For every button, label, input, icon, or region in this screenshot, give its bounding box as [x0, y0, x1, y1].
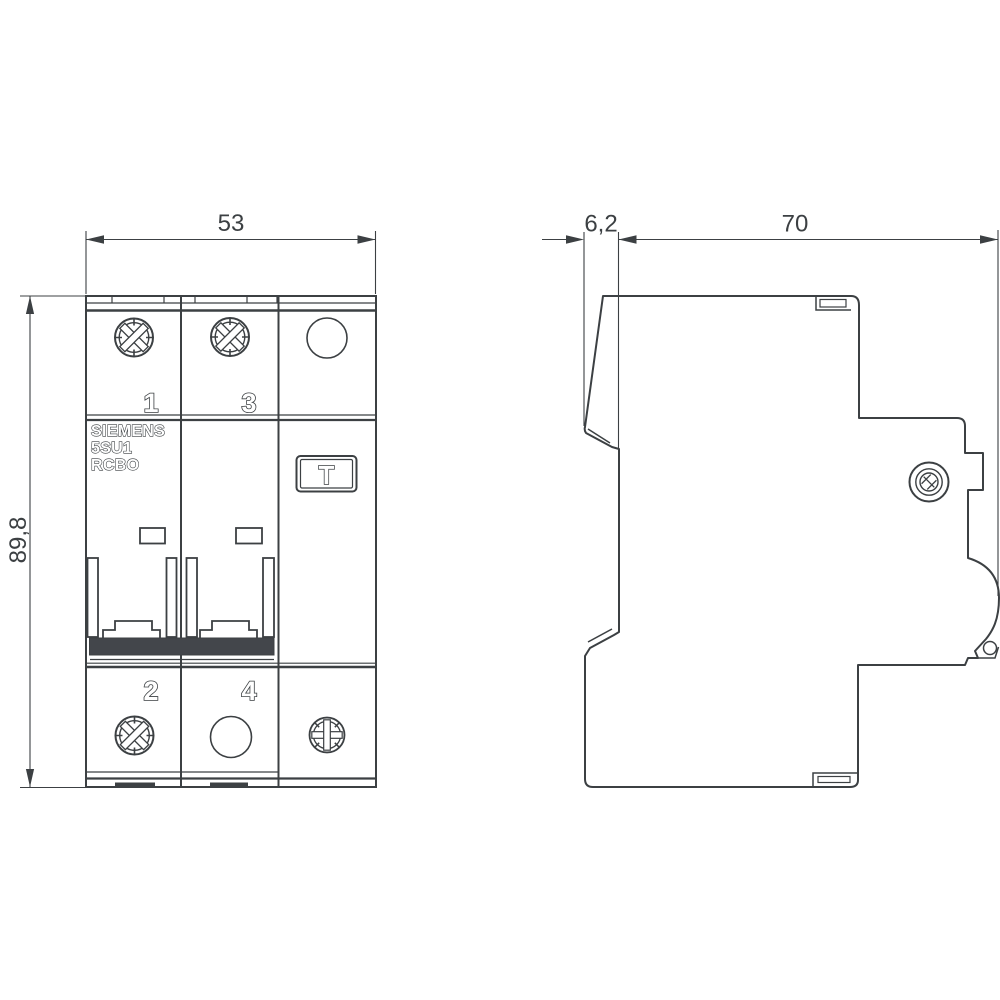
brand-line-type: RCBO	[91, 457, 139, 474]
front-view: 1 3 SIEMENS 5SU1 RCBO T	[86, 296, 376, 787]
terminal-screw-icon	[203, 310, 257, 364]
rear-terminal-slot-bottom	[813, 773, 858, 787]
dim-front-depth-label: 6,2	[584, 211, 617, 238]
front-height-dimension: 89,8	[5, 296, 85, 788]
din-clip-edge[interactable]	[588, 629, 612, 642]
arrowhead-right-icon	[358, 235, 376, 243]
arrowhead-left-icon	[86, 235, 104, 243]
side-front-depth-dimension: 6,2	[542, 211, 619, 449]
arrowhead-right-icon	[566, 235, 584, 243]
rear-terminal-slot-top	[816, 296, 851, 310]
brand-line-siemens: SIEMENS	[91, 423, 165, 440]
bottom-band	[86, 772, 376, 787]
side-view	[585, 296, 999, 787]
dim-total-depth-label: 70	[782, 211, 809, 238]
terminal-screw-icon	[310, 718, 345, 753]
toggle-handle-bar[interactable]	[90, 638, 275, 655]
side-total-depth-dimension: 70	[619, 211, 999, 597]
indicator-window-icon	[236, 528, 262, 544]
side-screw-icon	[910, 463, 949, 502]
wire-hole-icon	[307, 318, 347, 358]
indicator-window-icon	[140, 528, 165, 544]
test-button-label: T	[319, 460, 335, 490]
front-outline	[86, 296, 376, 787]
wire-hole-icon	[211, 717, 252, 758]
terminal-screw-icon	[108, 709, 162, 763]
terminal-2-label: 2	[143, 676, 158, 706]
arrowhead-up-icon	[26, 296, 34, 314]
switch-lever[interactable]	[200, 621, 257, 638]
upper-section-line	[86, 415, 376, 420]
lower-section-line	[86, 663, 376, 667]
arrowhead-left-icon	[619, 235, 637, 243]
terminal-3-label: 3	[241, 388, 256, 418]
side-profile-outline	[585, 296, 999, 787]
switch-lever[interactable]	[103, 621, 160, 638]
dimension-drawing: 1 3 SIEMENS 5SU1 RCBO T	[0, 0, 1000, 1000]
brand-line-model: 5SU1	[91, 440, 132, 457]
test-button[interactable]: T	[297, 456, 357, 492]
arrowhead-right-icon	[980, 235, 998, 243]
dim-height-label: 89,8	[5, 517, 32, 564]
dim-width-label: 53	[218, 210, 245, 237]
front-width-dimension: 53	[86, 210, 376, 294]
terminal-screw-icon	[107, 311, 161, 365]
brand-lettering: SIEMENS 5SU1 RCBO	[91, 423, 165, 474]
arrowhead-down-icon	[26, 769, 34, 787]
top-band	[86, 296, 376, 311]
terminal-4-label: 4	[241, 676, 256, 706]
terminal-1-label: 1	[143, 388, 158, 418]
drawing-canvas: 1 3 SIEMENS 5SU1 RCBO T	[0, 0, 1000, 1000]
